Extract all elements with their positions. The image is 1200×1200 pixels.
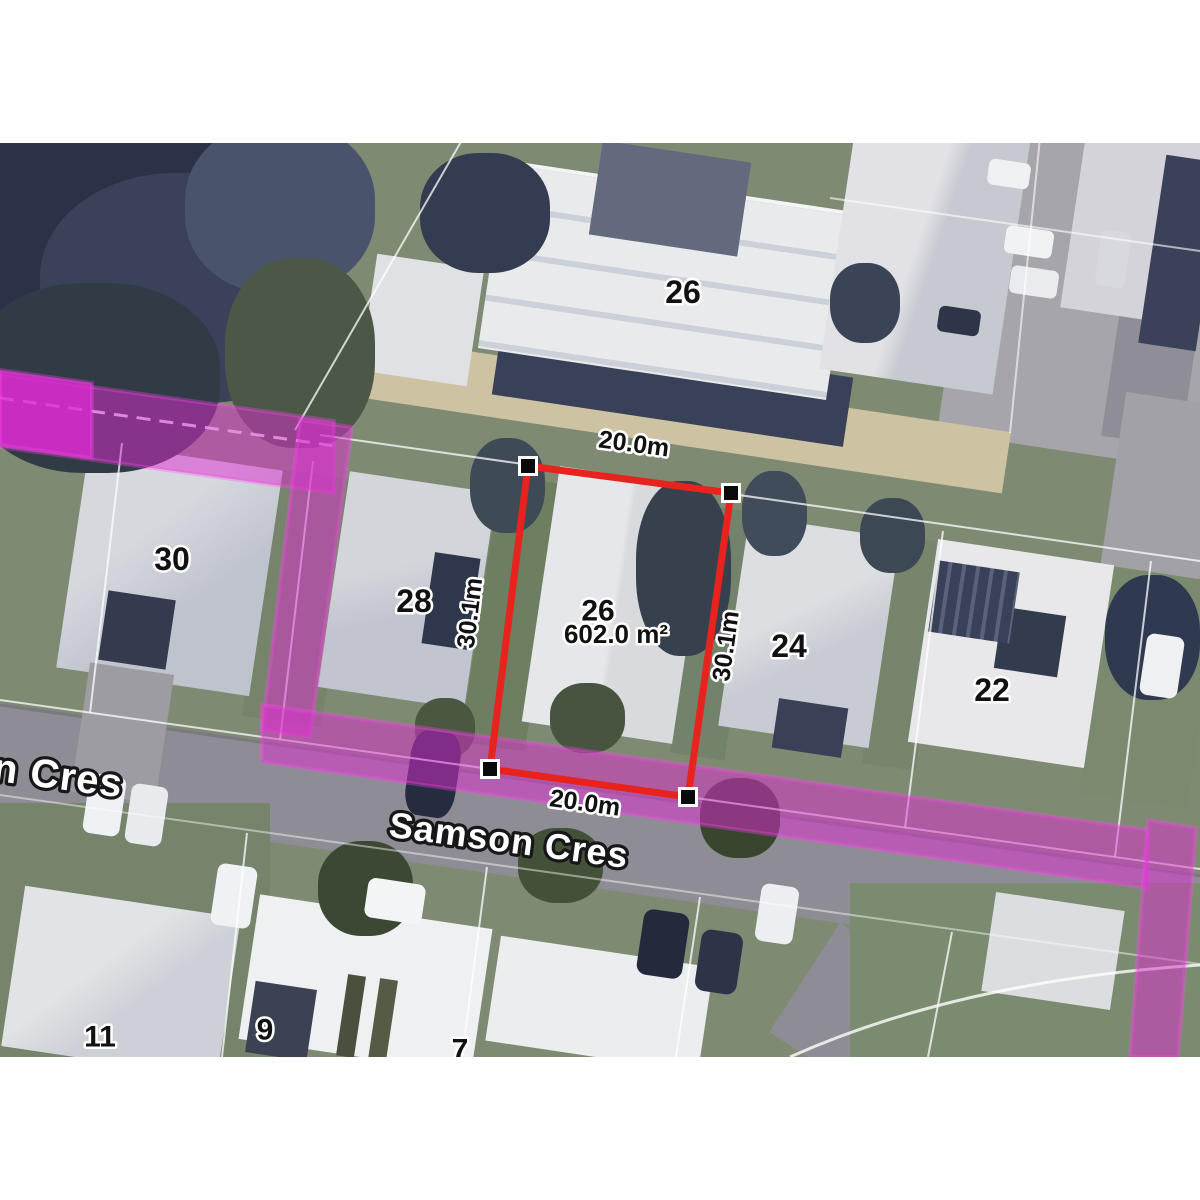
- house-number-7: 7: [452, 1034, 469, 1058]
- house-number-28: 28: [396, 583, 432, 619]
- lot-area-label: 602.0 m²: [564, 619, 668, 649]
- dimension-label-left: 30.1m: [452, 576, 488, 650]
- highlight-band: [0, 370, 92, 458]
- dimension-label-top: 20.0m: [597, 425, 671, 462]
- house-number-11: 11: [84, 1021, 116, 1054]
- corner-marker: [723, 485, 740, 502]
- house-number-22: 22: [974, 672, 1010, 708]
- corner-marker: [482, 761, 499, 778]
- house-number-30: 30: [154, 541, 190, 577]
- house-number-24: 24: [771, 628, 807, 664]
- corner-marker: [680, 789, 697, 806]
- house-number-26-top: 26: [665, 274, 701, 310]
- house-number-9: 9: [257, 1014, 274, 1047]
- corner-marker: [520, 458, 537, 475]
- highlight-band: [262, 705, 1148, 888]
- listing-map-image: 20.0m 20.0m 30.1m 30.1m 26 602.0 m² 26 3…: [0, 0, 1200, 1200]
- map-overlay: 20.0m 20.0m 30.1m 30.1m 26 602.0 m² 26 3…: [0, 143, 1200, 1057]
- satellite-map: 20.0m 20.0m 30.1m 30.1m 26 602.0 m² 26 3…: [0, 143, 1200, 1057]
